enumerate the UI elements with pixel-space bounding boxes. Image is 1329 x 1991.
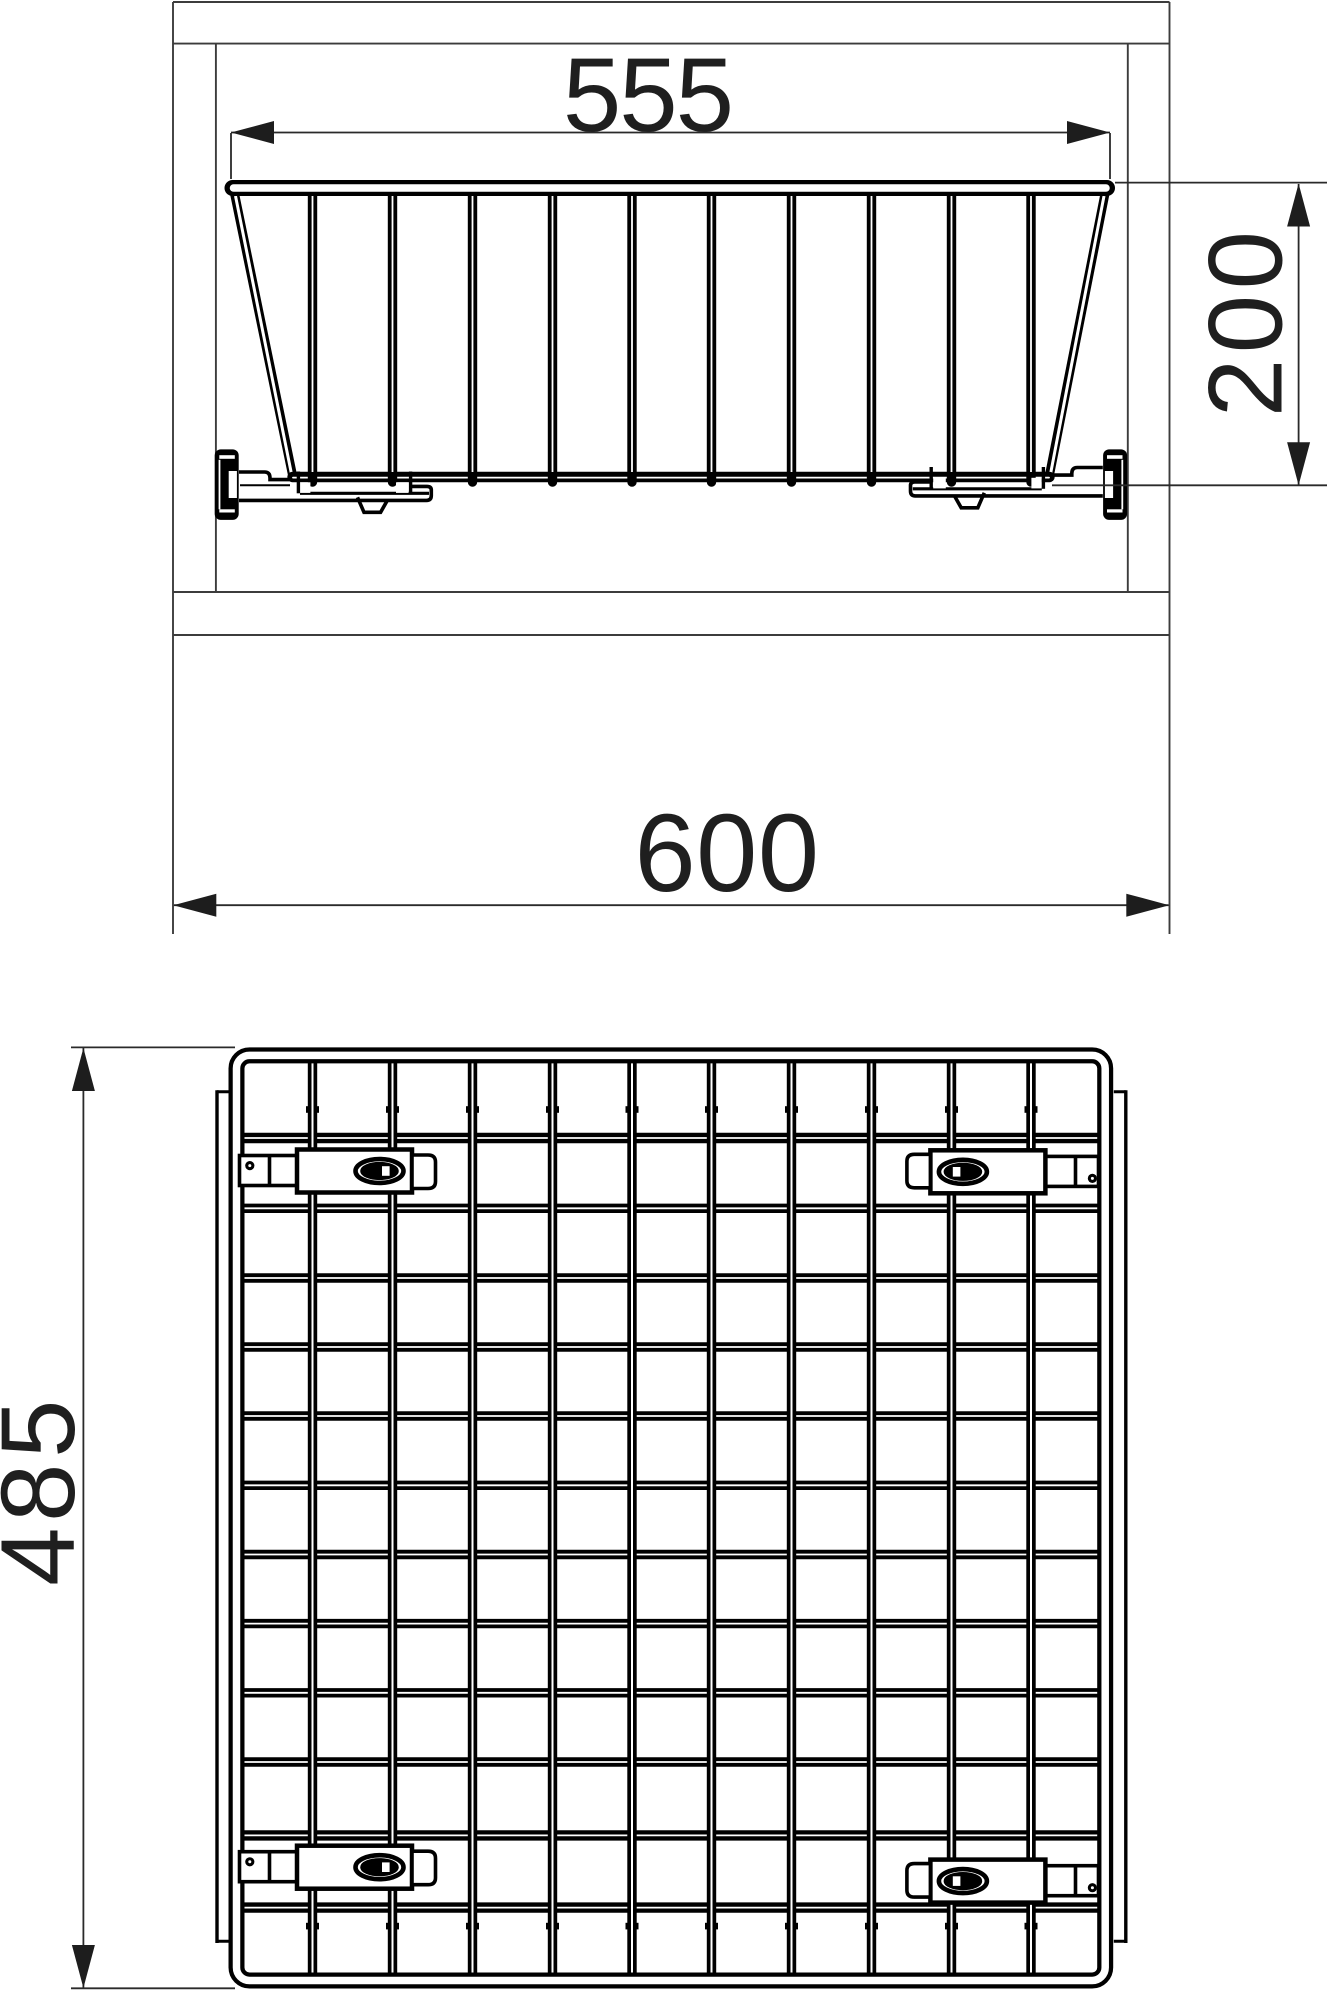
svg-text:200: 200 [1188, 225, 1305, 417]
svg-text:600: 600 [634, 792, 819, 915]
svg-text:485: 485 [0, 1394, 97, 1586]
svg-text:555: 555 [563, 37, 732, 154]
